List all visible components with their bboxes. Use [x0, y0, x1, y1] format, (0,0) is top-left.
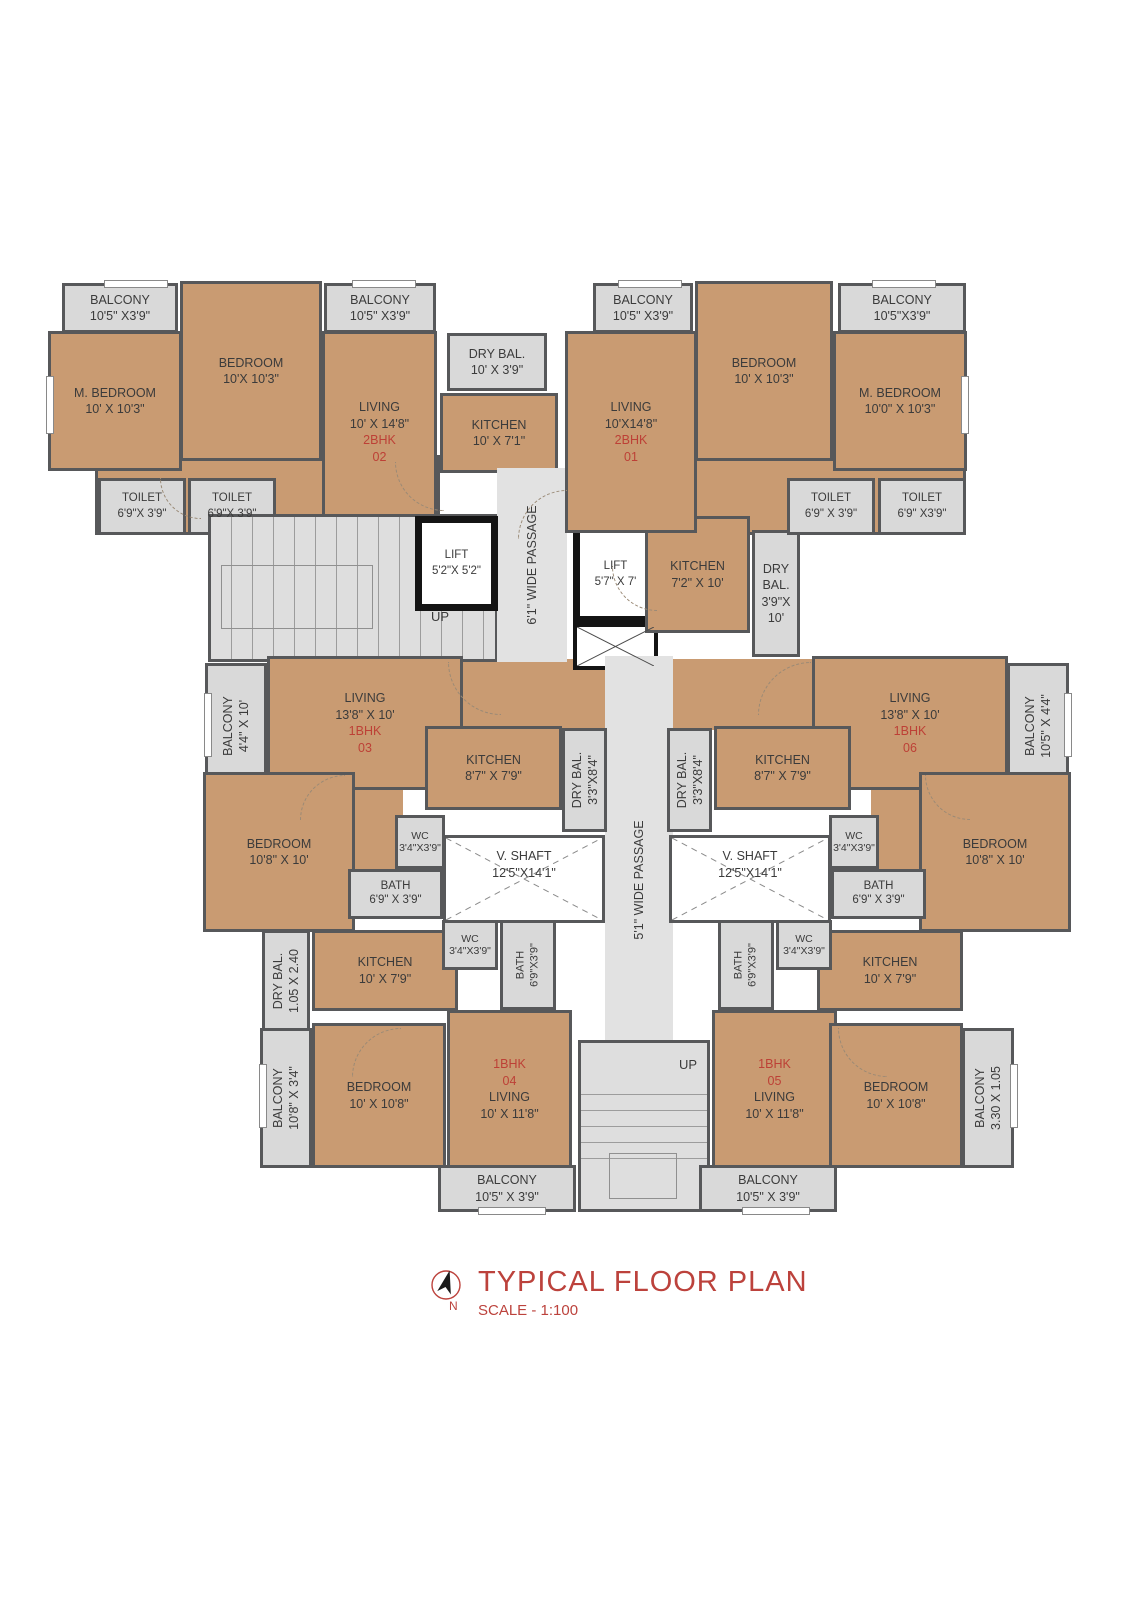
unit-tag-1bhk04: 1BHK — [493, 1056, 526, 1073]
room-kitchen-1bhk05: KITCHEN10' X 7'9" — [817, 930, 963, 1011]
passage-middle: 5'1" WIDE PASSAGE — [605, 656, 673, 1042]
unit-tag-2bhk02: 2BHK — [363, 432, 396, 449]
window-marker — [618, 280, 682, 288]
room-wc: WC3'4"X3'9" — [395, 815, 445, 869]
room-lift-1: LIFT5'2"X 5'2" — [415, 516, 498, 611]
room-bedroom: BEDROOM10' X 10'3" — [695, 281, 833, 461]
ventilation-shaft-right: V. SHAFT12'5"X14'1" — [669, 835, 831, 923]
room-dry-balcony: DRY BAL.3'9"X 10' — [752, 530, 800, 657]
room-bath: BATH6'9" X 3'9" — [348, 869, 443, 919]
unit-tag-2bhk01: 2BHK — [615, 432, 648, 449]
room-bedroom: BEDROOM10'8" X 10' — [919, 772, 1071, 932]
room-balcony: BALCONY10'5" X 3'9" — [699, 1165, 837, 1212]
window-marker — [1010, 1064, 1018, 1128]
room-living-1bhk04: 1BHK 04 LIVING 10' X 11'8" — [447, 1010, 572, 1168]
room-balcony: BALCONY10'5" X 4'4" — [1007, 663, 1069, 788]
room-kitchen-1bhk06: KITCHEN8'7" X 7'9" — [714, 726, 851, 810]
room-balcony: BALCONY10'5" X3'9" — [324, 283, 436, 333]
room-balcony: BALCONY10'5" X3'9" — [593, 283, 693, 333]
room-toilet: TOILET6'9" X3'9" — [878, 478, 966, 535]
room-lift-2: LIFT5'7" X 7' — [573, 526, 658, 623]
room-master-bedroom: M. BEDROOM10' X 10'3" — [48, 331, 182, 471]
room-bedroom: BEDROOM10'X 10'3" — [180, 281, 322, 461]
window-marker — [1064, 693, 1072, 757]
page-title: TYPICAL FLOOR PLAN — [478, 1266, 808, 1299]
room-balcony: BALCONY10'8" X 3'4" — [260, 1028, 312, 1168]
room-toilet: TOILET6'9" X 3'9" — [787, 478, 875, 535]
unit-tag-1bhk06: 1BHK — [894, 723, 927, 740]
room-kitchen-2bhk02: KITCHEN10' X 7'1" — [440, 393, 558, 473]
room-wc: WC3'4"X3'9" — [829, 815, 879, 869]
room-living-2bhk01: LIVING 10'X14'8" 2BHK 01 — [565, 331, 697, 533]
window-marker — [259, 1064, 267, 1128]
room-dry-balcony: DRY BAL.10' X 3'9" — [447, 333, 547, 391]
staircase-bottom: UP — [578, 1040, 710, 1212]
room-toilet: TOILET6'9"X 3'9" — [188, 478, 276, 535]
window-marker — [352, 280, 416, 288]
room-balcony: BALCONY10'5" X3'9" — [62, 283, 178, 333]
room-kitchen-2bhk01: KITCHEN7'2" X 10' — [645, 516, 750, 633]
stairs-up-label: UP — [679, 1057, 697, 1072]
room-dry-balcony: DRY BAL.1.05 X 2.40 — [262, 930, 310, 1032]
room-balcony: BALCONY4'4" X 10' — [205, 663, 267, 788]
stair-landing — [609, 1153, 677, 1199]
lift-shaft-cross — [573, 623, 658, 670]
window-marker — [872, 280, 936, 288]
window-marker — [478, 1207, 546, 1215]
room-master-bedroom: M. BEDROOM10'0" X 10'3" — [833, 331, 967, 471]
room-kitchen-1bhk04: KITCHEN10' X 7'9" — [312, 930, 458, 1011]
room-living-1bhk05: 1BHK 05 LIVING 10' X 11'8" — [712, 1010, 837, 1168]
unit-tag-1bhk03: 1BHK — [349, 723, 382, 740]
room-bedroom: BEDROOM10' X 10'8" — [312, 1023, 446, 1168]
room-dry-balcony: DRY BAL.3'3"X8'4" — [562, 728, 607, 832]
unit-tag-1bhk05: 1BHK — [758, 1056, 791, 1073]
title-block: N TYPICAL FLOOR PLAN SCALE - 1:100 — [426, 1266, 808, 1319]
stair-landing — [221, 565, 373, 629]
room-bedroom: BEDROOM10' X 10'8" — [829, 1023, 963, 1168]
room-living-2bhk02: LIVING 10' X 14'8" 2BHK 02 — [322, 331, 437, 533]
room-bath: BATH6'9"X3'9" — [718, 920, 774, 1010]
scale-label: SCALE - 1:100 — [478, 1302, 808, 1319]
floor-plan-canvas: BALCONY10'5" X3'9" BALCONY10'5" X3'9" BE… — [0, 0, 1131, 1600]
north-label: N — [449, 1299, 458, 1312]
window-marker — [104, 280, 168, 288]
window-marker — [46, 376, 54, 434]
stairs-up-label: UP — [431, 609, 449, 624]
window-marker — [742, 1207, 810, 1215]
room-wc: WC3'4"X3'9" — [442, 920, 498, 970]
room-kitchen-1bhk03: KITCHEN8'7" X 7'9" — [425, 726, 562, 810]
room-bath: BATH6'9"X3'9" — [500, 920, 556, 1010]
room-dry-balcony: DRY BAL.3'3"X8'4" — [667, 728, 712, 832]
window-marker — [961, 376, 969, 434]
room-balcony: BALCONY10'5" X 3'9" — [438, 1165, 576, 1212]
north-arrow-icon: N — [426, 1266, 466, 1312]
window-marker — [204, 693, 212, 757]
ventilation-shaft-left: V. SHAFT12'5"X14'1" — [443, 835, 605, 923]
room-bath: BATH6'9" X 3'9" — [831, 869, 926, 919]
room-bedroom: BEDROOM10'8" X 10' — [203, 772, 355, 932]
room-wc: WC3'4"X3'9" — [776, 920, 832, 970]
room-toilet: TOILET6'9"X 3'9" — [98, 478, 186, 535]
room-balcony: BALCONY3.30 X 1.05 — [962, 1028, 1014, 1168]
room-balcony: BALCONY10'5"X3'9" — [838, 283, 966, 333]
